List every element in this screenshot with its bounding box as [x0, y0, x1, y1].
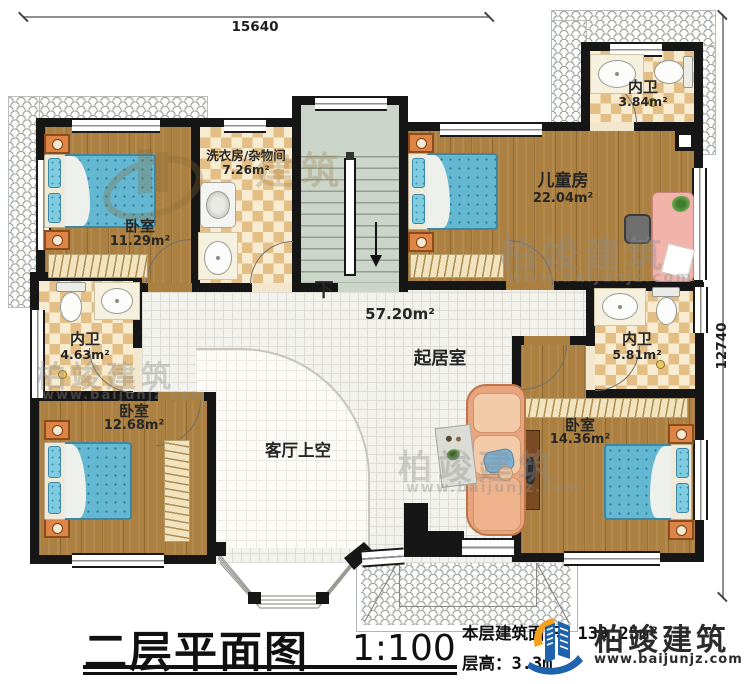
room-label-kids: 儿童房 — [520, 172, 606, 191]
title-underline — [83, 665, 457, 675]
door-gap-bedroom-bl — [158, 392, 204, 401]
room-area-laundry: 7.26m² — [196, 164, 296, 177]
watermark-logo-swoosh — [98, 138, 208, 233]
room-label-bath-left: 内卫 — [60, 331, 110, 348]
nightstand — [44, 518, 70, 538]
window-bath-left — [30, 310, 45, 398]
toilet-tank — [652, 287, 680, 297]
window-kids-right — [692, 168, 707, 280]
window-laundry-top — [224, 118, 266, 133]
toilet-tank — [683, 56, 693, 88]
door-gap-bath-left — [133, 348, 142, 392]
wardrobe — [410, 254, 504, 278]
floor-drain — [58, 370, 67, 379]
door-gap-laundry — [252, 283, 292, 292]
person-head — [498, 466, 513, 481]
bed-pillow — [48, 193, 61, 223]
bed-pillow — [412, 194, 425, 224]
balcony-door-window — [462, 538, 514, 557]
window-bedroom-bl-bottom — [72, 553, 164, 568]
nightstand — [44, 420, 70, 440]
toilet-tank — [56, 282, 86, 292]
window-bedroom-br-bottom — [564, 551, 660, 566]
bed-pillow — [676, 483, 689, 513]
room-label-bath-right: 内卫 — [612, 331, 662, 348]
corner-pillar — [675, 131, 695, 151]
company-logo-icon — [524, 612, 588, 676]
dimension-line-right — [722, 14, 724, 597]
floor-height-label: 层高： — [462, 654, 512, 673]
bed-pillow — [48, 158, 61, 188]
room-label-living: 起居室 — [400, 350, 480, 369]
closet — [164, 440, 190, 542]
bed-pillow — [48, 446, 61, 478]
room-area-bath-right: 5.81m² — [608, 348, 666, 362]
bed-pillow — [412, 158, 425, 188]
toilet-bowl — [656, 297, 677, 325]
door-gap-bath-right — [586, 346, 595, 390]
washer-drum — [206, 191, 230, 219]
plan-scale: 1:100 — [352, 628, 456, 669]
window-bedroom-tl-top — [72, 118, 160, 133]
window-bath-right — [693, 287, 708, 333]
stairs-down-label: 下 — [304, 280, 344, 301]
dimension-line-top — [23, 16, 490, 18]
sofa-cushion — [473, 393, 521, 433]
dimension-top-value: 15640 — [210, 19, 300, 35]
bed-pillow — [676, 448, 689, 478]
company-logo-url: www.baijunjz.com — [594, 652, 743, 667]
void-side-window — [361, 548, 404, 568]
laundry-sink — [204, 241, 232, 275]
door-gap-bath-tr — [590, 122, 634, 131]
bay-window — [194, 540, 380, 628]
stair-newel — [346, 152, 354, 160]
table-items — [456, 436, 462, 442]
nightstand — [408, 133, 434, 153]
nightstand — [668, 520, 694, 540]
table-plant — [446, 449, 460, 462]
bathroom-sink — [602, 293, 638, 320]
table-items — [446, 435, 453, 442]
bed-pillow — [48, 482, 61, 514]
toilet-bowl — [60, 292, 82, 322]
room-area-bedroom-bl: 12.68m² — [98, 419, 170, 433]
room-area-bedroom-br: 14.36m² — [544, 433, 616, 447]
stair-arrow-stem — [375, 222, 377, 256]
desk-chair — [624, 214, 651, 244]
room-area-bath-left: 4.63m² — [56, 348, 114, 362]
nightstand — [44, 230, 70, 250]
window-stairs-top — [315, 96, 387, 111]
room-area-kids: 22.04m² — [520, 192, 606, 206]
room-area-living: 57.20m² — [358, 306, 442, 323]
sitting-room-bottom-wall — [404, 531, 464, 557]
dimension-right-value: 12740 — [714, 316, 730, 376]
wardrobe — [524, 398, 688, 418]
room-label-laundry: 洗衣房/杂物间 — [196, 149, 296, 163]
nightstand — [668, 424, 694, 444]
window-bedroom-br-right — [693, 440, 708, 520]
window-kids-top — [440, 122, 542, 137]
bathroom-sink — [101, 288, 133, 314]
coffee-table — [434, 424, 477, 488]
room-area-bedroom-tl: 11.29m² — [95, 235, 185, 249]
door-gap-bedroom-tl — [148, 283, 192, 292]
tv — [525, 457, 536, 485]
room-label-void: 客厅上空 — [248, 442, 348, 460]
floor-plan-page: 卧室 11.29m² 洗衣房/杂物间 7.26m² 儿童房 22.04m² 内卫… — [0, 0, 750, 684]
stair-arrow-head — [370, 255, 382, 267]
door-gap-bedroom-br — [524, 336, 570, 345]
wardrobe — [48, 254, 148, 278]
stair-rail — [344, 158, 356, 276]
nightstand — [44, 134, 70, 154]
sofa-cushion — [473, 477, 521, 531]
nightstand — [408, 232, 434, 252]
room-area-bath-tr: 3.84m² — [614, 95, 672, 109]
